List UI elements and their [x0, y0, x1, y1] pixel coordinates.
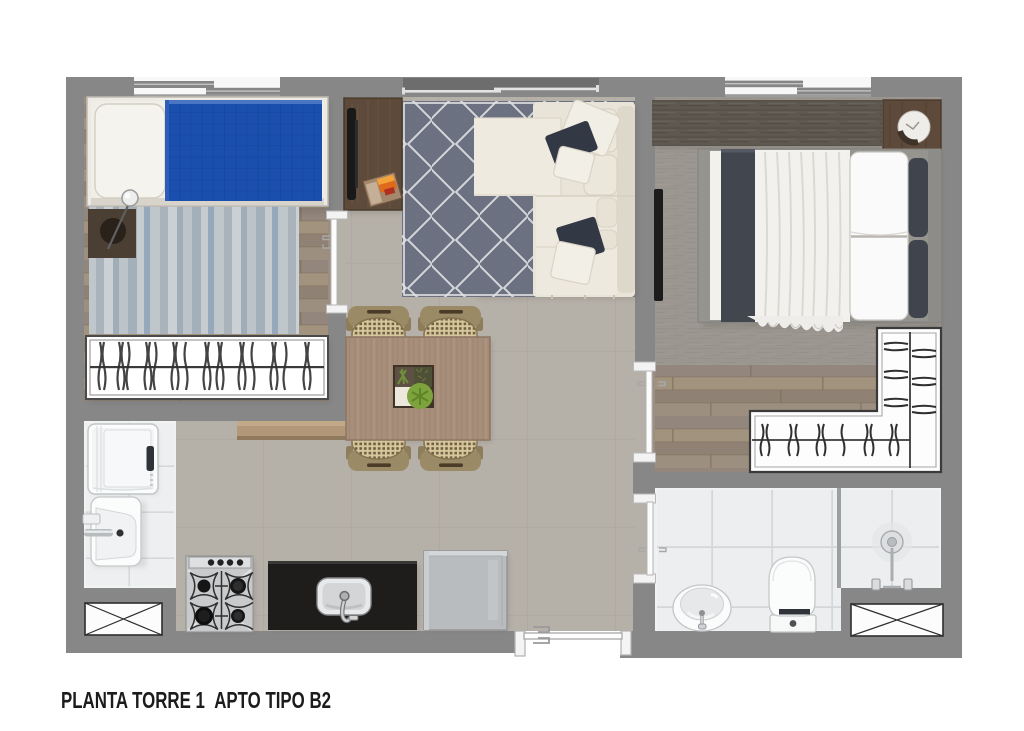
- svg-text:PLANTA TORRE 1 APTO TIPO B2: PLANTA TORRE 1 APTO TIPO B2: [61, 687, 331, 713]
